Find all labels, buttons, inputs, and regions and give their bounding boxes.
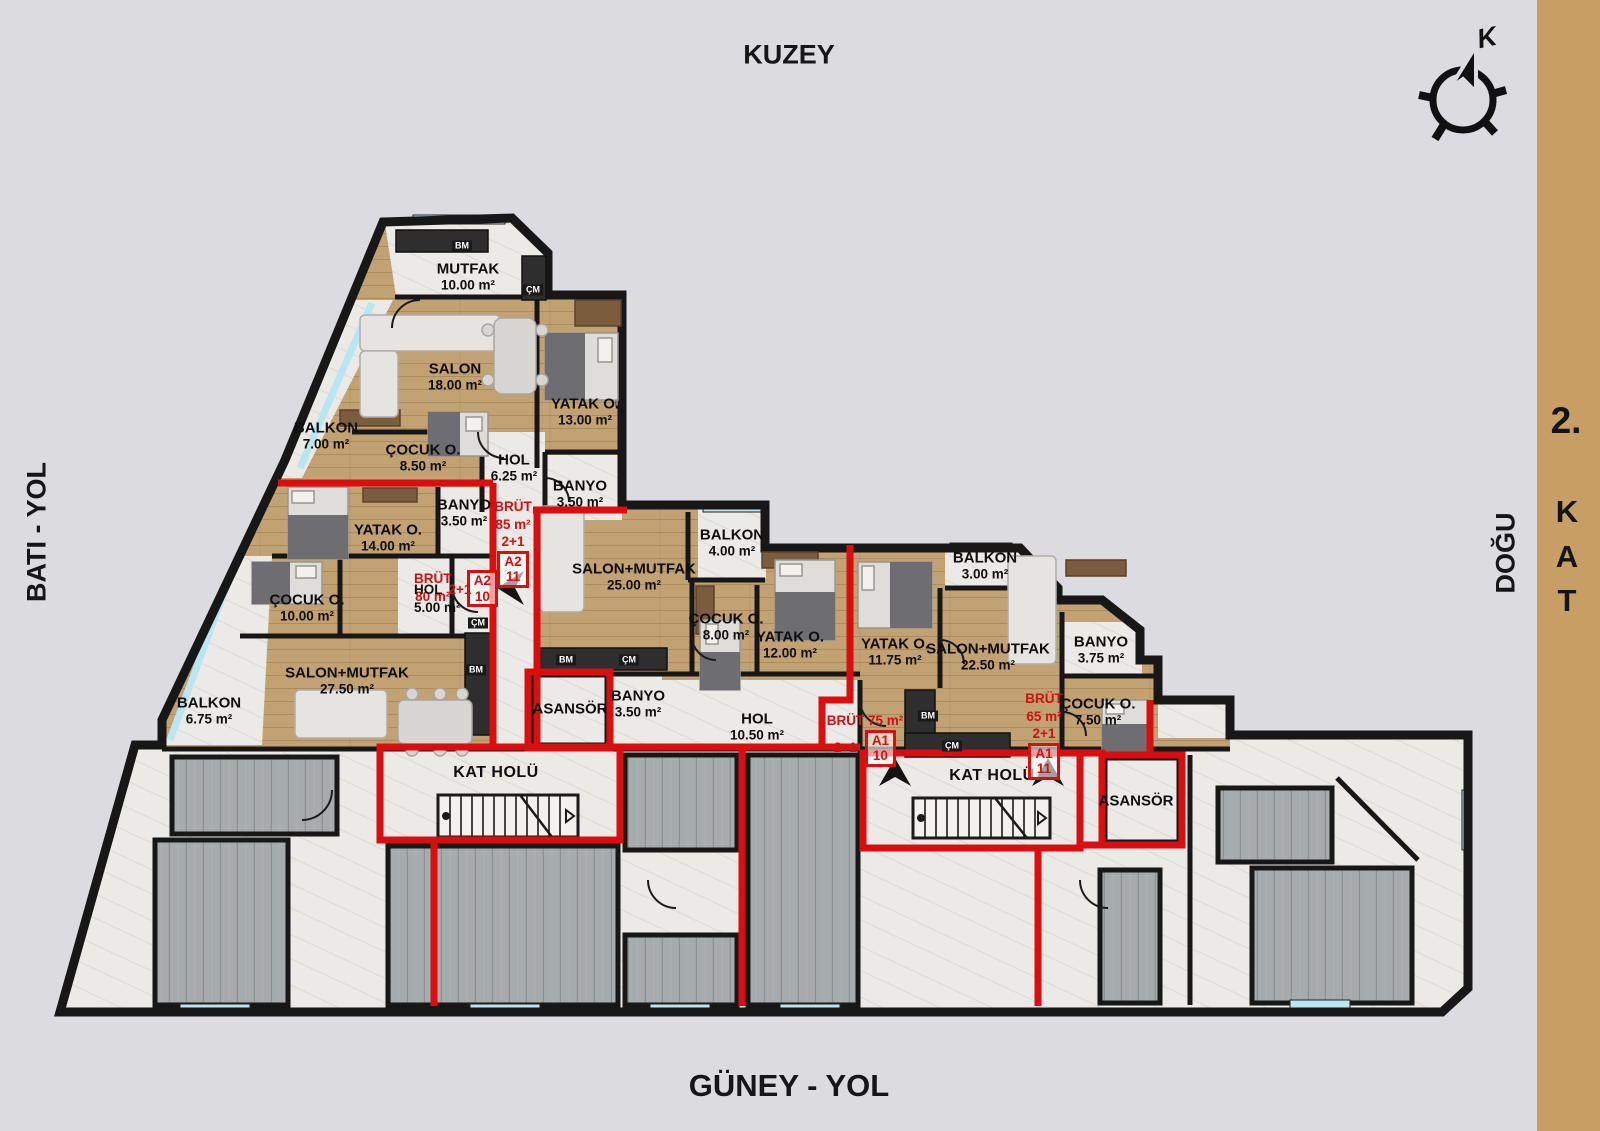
fixture-cm: ÇM [468,618,488,629]
fixture-bm: BM [452,241,472,252]
label-salonmutfak-2750: SALON+MUTFAK27.50 m² [285,665,409,698]
label-yatak-1175: YATAK O.11.75 m² [861,636,929,669]
label-kat-holu-left: KAT HOLÜ [453,764,538,782]
label-cocuk-8: ÇOCUK O.8.00 m² [689,611,764,644]
fixture-cm: ÇM [523,285,543,296]
label-cocuk-10: ÇOCUK O.10.00 m² [270,592,345,625]
label-yatak-13: YATAK O.13.00 m² [551,396,619,429]
direction-north: KUZEY [743,40,835,71]
fixture-bm: BM [556,655,576,666]
direction-south: GÜNEY - YOL [689,1068,889,1104]
floorplan-page: KUZEY GÜNEY - YOL BATI - YOL DOĞU 2. K A… [0,0,1600,1131]
label-balkon-4: BALKON4.00 m² [700,527,764,560]
fixture-bm: BM [918,711,938,722]
label-balkon-3: BALKON3.00 m² [953,550,1017,583]
label-banyo-350-c: BANYO3.50 m² [611,688,665,721]
direction-west: BATI - YOL [22,462,53,602]
label-asansor-left: ASANSÖR [532,700,607,717]
fixture-cm: ÇM [942,741,962,752]
label-banyo-375: BANYO3.75 m² [1074,634,1128,667]
label-yatak-14: YATAK O.14.00 m² [354,522,422,555]
staircase-left [438,795,578,837]
floor-word-letter: K [1556,494,1578,530]
unit-badge-a1-11: BRÜT 65 m² 2+1 A111 [1018,690,1070,780]
unit-badge-a1-10: BRÜT 75 m² 2+1 A110 [818,712,912,767]
floor-word-letter: T [1558,583,1577,619]
label-asansor-right: ASANSÖR [1098,792,1173,809]
label-salonmutfak-2250: SALON+MUTFAK22.50 m² [926,641,1050,674]
floor-word-letter: A [1556,539,1578,575]
label-salon-18: SALON18.00 m² [428,361,482,394]
direction-east: DOĞU [1491,513,1522,594]
label-hol-1050: HOL10.50 m² [730,711,784,744]
floor-number: 2. [1551,400,1582,442]
label-hol-625: HOL6.25 m² [491,452,538,485]
label-banyo-350-a: BANYO3.50 m² [553,478,607,511]
label-banyo-350-b: BANYO3.50 m² [437,497,491,530]
label-balkon-7: BALKON7.00 m² [294,420,358,453]
compass-icon [1419,46,1506,139]
staircase-right [913,798,1050,838]
fixture-cm: ÇM [619,655,639,666]
label-balkon-675: BALKON6.75 m² [177,695,241,728]
unit-badge-a2-10: BRÜT80 m² A210 HOL 2+1 5.00 m² [414,570,498,616]
label-yatak-12: YATAK O.12.00 m² [756,629,824,662]
label-salonmutfak-25: SALON+MUTFAK25.00 m² [572,561,696,594]
fixture-bm: BM [466,665,486,676]
label-mutfak: MUTFAK10.00 m² [437,261,500,294]
label-cocuk-850: ÇOCUK O.8.50 m² [386,442,461,475]
floorplan-drawing [0,0,1600,1131]
label-cocuk-750: ÇOCUK O.7.50 m² [1061,696,1136,729]
